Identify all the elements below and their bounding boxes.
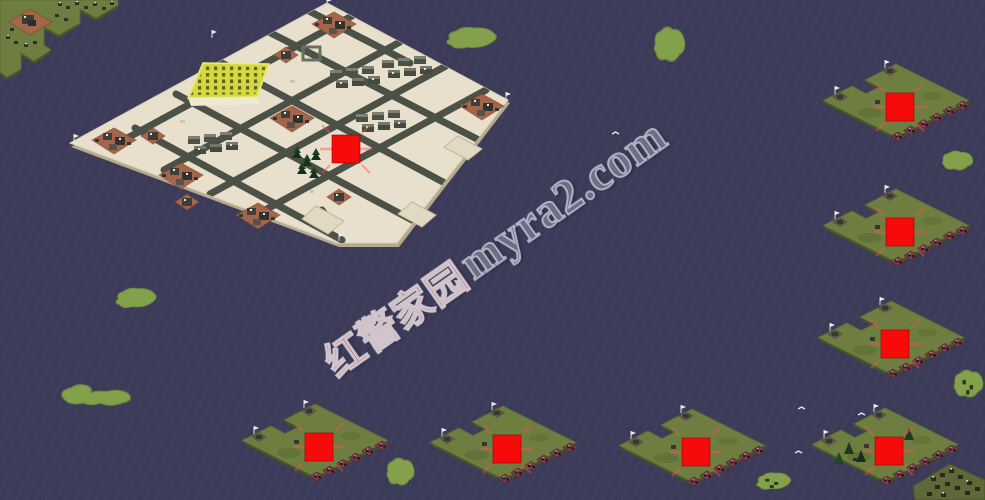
blob-island — [650, 22, 688, 70]
blob-island — [938, 148, 976, 175]
island-ground — [823, 189, 969, 262]
watermark-cjk-text: 红警家园 — [316, 254, 476, 385]
grass-mottle — [922, 92, 942, 100]
start-island-right-2 — [820, 183, 970, 267]
start-island-bottom-1 — [239, 398, 389, 482]
island-ground — [0, 0, 118, 77]
crop-field — [188, 63, 269, 106]
scout-unit — [294, 440, 299, 444]
unit-speck — [770, 485, 774, 488]
bird-icon — [795, 450, 803, 455]
grass-mottle — [853, 345, 877, 355]
island-ground — [242, 404, 388, 477]
blob-island — [58, 378, 136, 412]
unit-speck — [970, 385, 973, 389]
grass-mottle — [718, 437, 738, 445]
island-ground — [619, 409, 765, 482]
start-island-bottom-4 — [809, 402, 959, 486]
building — [28, 20, 36, 26]
grass-mottle — [858, 108, 882, 118]
map-preview: 红警家园myra2.com — [0, 0, 985, 500]
island-ground — [823, 64, 969, 137]
island-ground — [812, 408, 958, 481]
grass-mottle — [465, 450, 489, 460]
bird-icon — [858, 412, 866, 417]
grass-mottle — [922, 217, 942, 225]
island-ground — [818, 301, 964, 374]
blob-island — [108, 285, 160, 313]
scout-unit — [482, 442, 487, 446]
start-island-right-3 — [815, 295, 965, 379]
building-light — [24, 16, 26, 18]
grass-mottle — [917, 329, 937, 337]
island-ground — [430, 406, 576, 479]
start-island-bottom-2 — [427, 400, 577, 484]
scout-unit — [875, 225, 880, 229]
scout-unit — [875, 100, 880, 104]
unit-speck — [966, 390, 969, 394]
grass-mottle — [529, 434, 549, 442]
grass-mottle — [277, 448, 301, 458]
corner-island — [0, 0, 125, 115]
bird-icon — [612, 131, 620, 136]
scout-unit — [864, 444, 869, 448]
blob-island — [437, 24, 501, 54]
scout-unit — [870, 337, 875, 341]
scout-unit — [671, 445, 676, 449]
grass-mottle — [654, 453, 678, 463]
grass-mottle — [858, 233, 882, 243]
unit-speck — [963, 380, 966, 384]
grass-mottle — [341, 432, 361, 440]
start-island-right-1 — [820, 58, 970, 142]
start-island-bottom-3 — [616, 403, 766, 487]
bird-icon — [798, 406, 806, 411]
unit-speck — [774, 482, 778, 485]
